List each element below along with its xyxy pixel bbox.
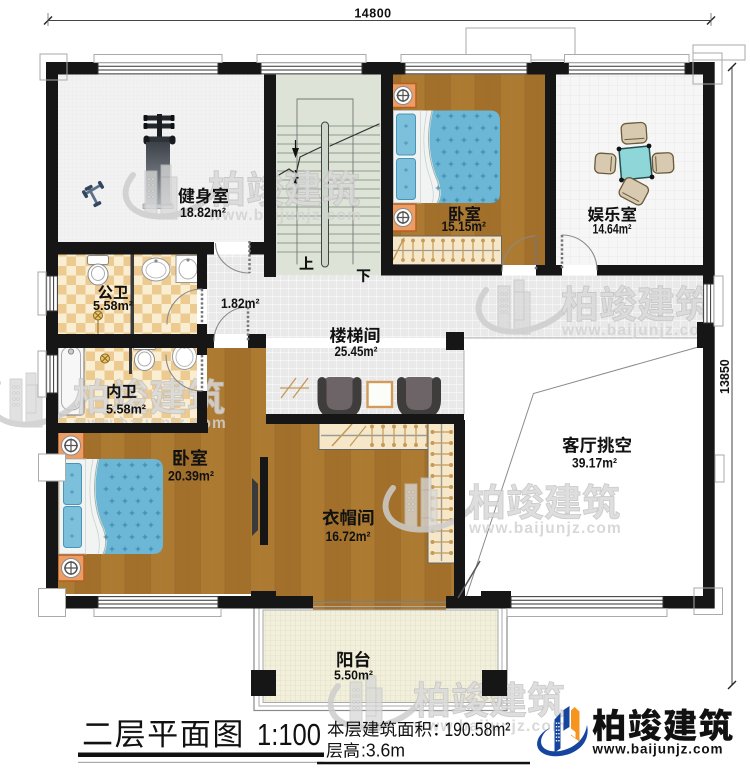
- svg-text::3.6m: :3.6m: [361, 741, 405, 761]
- svg-text:5.50m²: 5.50m²: [334, 668, 374, 683]
- svg-text:5.58m²: 5.58m²: [93, 298, 134, 313]
- svg-text:190.58m²: 190.58m²: [445, 720, 511, 741]
- svg-text:14800: 14800: [354, 7, 391, 21]
- svg-text:5.58m²: 5.58m²: [106, 402, 147, 417]
- svg-text:39.17m²: 39.17m²: [572, 456, 617, 471]
- svg-text:14.64m²: 14.64m²: [593, 222, 632, 237]
- svg-text:18.82m²: 18.82m²: [180, 205, 226, 220]
- svg-text:1:100: 1:100: [257, 717, 321, 752]
- svg-text:25.45m²: 25.45m²: [335, 344, 378, 359]
- svg-text:20.39m²: 20.39m²: [168, 469, 214, 484]
- svg-text:www.baijunjz.com: www.baijunjz.com: [592, 742, 724, 757]
- svg-text:13850: 13850: [718, 359, 732, 394]
- svg-text:16.72m²: 16.72m²: [326, 529, 371, 544]
- svg-text:1.82m²: 1.82m²: [221, 295, 260, 311]
- svg-text:15.15m²: 15.15m²: [442, 219, 487, 234]
